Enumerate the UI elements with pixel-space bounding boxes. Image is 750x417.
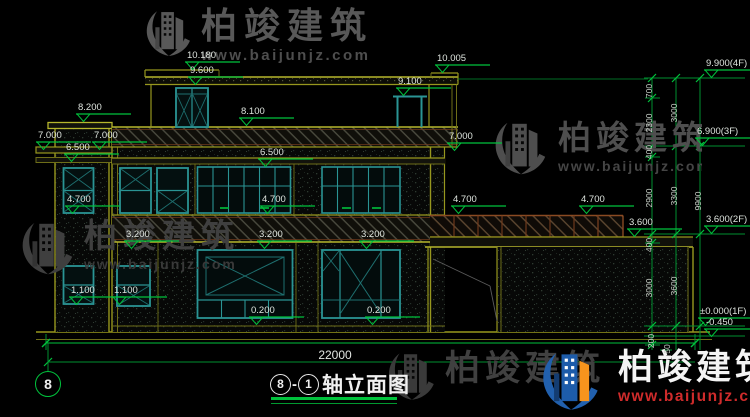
vertical-dimension-label: 9900 bbox=[693, 192, 703, 211]
window-large-center bbox=[198, 250, 293, 318]
cad-elevation-screen: 柏竣建筑 www.baijunjz.com 柏竣建筑 www.baijunjz.… bbox=[0, 0, 750, 417]
drawing-title: 8 - 1 轴立面图 bbox=[270, 369, 410, 399]
tower-window-2f bbox=[64, 168, 94, 213]
title-underline-thin bbox=[271, 403, 397, 404]
vertical-dimension-label: 3300 bbox=[669, 187, 679, 206]
vertical-dimension-label: 400 bbox=[644, 145, 654, 159]
vertical-dimension-label: 700 bbox=[644, 84, 654, 98]
vertical-dimension-label: 2300 bbox=[644, 114, 654, 133]
vertical-dimension-label: 2900 bbox=[644, 189, 654, 208]
roof-pergola-posts bbox=[393, 97, 427, 128]
vertical-dimension-label: 3000 bbox=[644, 279, 654, 298]
vertical-dimension-label: 200 bbox=[646, 334, 656, 348]
window-band-right bbox=[322, 167, 400, 213]
ground-lines bbox=[36, 332, 712, 340]
vertical-dimension-label: 3000 bbox=[669, 104, 679, 123]
elevation-drawing bbox=[0, 0, 750, 417]
second-floor-windows bbox=[120, 167, 400, 213]
title-text: 轴立面图 bbox=[322, 369, 410, 399]
left-tower bbox=[36, 123, 118, 333]
window-large-right bbox=[322, 250, 400, 318]
title-underline bbox=[271, 397, 397, 400]
window-band-center bbox=[198, 167, 291, 213]
tower-window-1f bbox=[64, 266, 94, 304]
vertical-dimension-label: 3600 bbox=[669, 277, 679, 296]
title-dash: - bbox=[292, 376, 297, 393]
vertical-dimension-label: 400 bbox=[644, 238, 654, 252]
penthouse-door bbox=[176, 88, 208, 127]
title-axis-circle-left: 8 bbox=[270, 374, 291, 395]
vertical-dimension-label: 50 bbox=[662, 344, 672, 353]
title-axis-circle-right: 1 bbox=[298, 374, 319, 395]
axis-bubble-8: 8 bbox=[35, 371, 61, 397]
overall-width-dimension: 22000 bbox=[300, 348, 370, 362]
